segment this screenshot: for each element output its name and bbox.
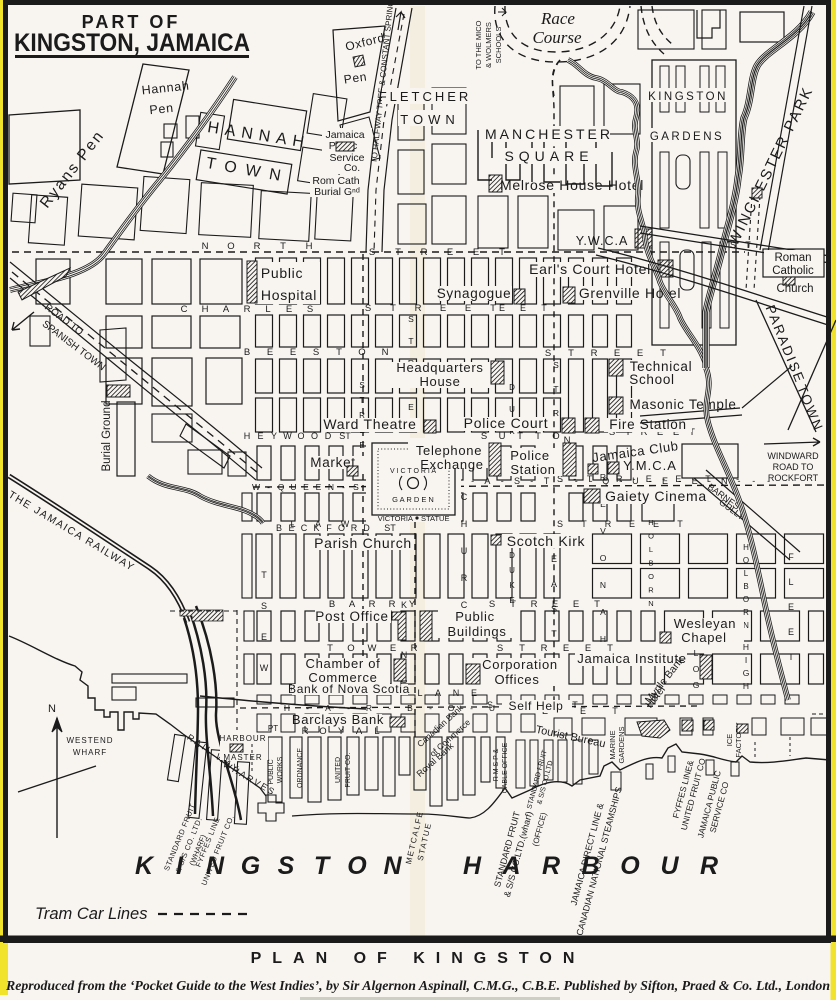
svg-text:SCHOOLS: SCHOOLS [494, 27, 503, 64]
svg-text:R M S P &: R M S P & [493, 748, 500, 781]
svg-text:E: E [257, 431, 263, 441]
svg-text:-: - [501, 476, 504, 486]
svg-text:WORKS: WORKS [277, 756, 284, 783]
svg-text:N: N [600, 580, 606, 590]
svg-text:HARBOUR: HARBOUR [219, 734, 266, 743]
svg-text:S: S [514, 476, 520, 486]
svg-text:TOWN: TOWN [400, 112, 459, 127]
svg-text:Gaiety Cinema: Gaiety Cinema [605, 488, 707, 504]
svg-text:O: O [620, 852, 640, 880]
svg-text:S: S [553, 360, 559, 370]
svg-text:A: A [551, 579, 557, 589]
svg-text:E: E [551, 554, 557, 564]
svg-text:E: E [267, 347, 273, 358]
svg-text:T: T [612, 706, 618, 716]
svg-text:Telephone: Telephone [416, 443, 482, 458]
svg-text:Synagogue: Synagogue [437, 286, 512, 301]
svg-text:U: U [509, 566, 515, 575]
svg-text:B: B [407, 703, 413, 713]
svg-text:FLETCHER: FLETCHER [379, 89, 472, 104]
svg-text:T: T [535, 431, 541, 442]
svg-text:-: - [342, 482, 345, 492]
svg-text:Q: Q [278, 482, 285, 492]
svg-text:W: W [252, 482, 260, 492]
svg-text:W: W [283, 431, 292, 441]
svg-text:H: H [463, 852, 482, 880]
svg-text:ORDNANCE: ORDNANCE [297, 748, 304, 788]
svg-text:T: T [490, 303, 496, 314]
svg-text:Ward Theatre: Ward Theatre [323, 416, 416, 432]
svg-text:Y.M.C.A: Y.M.C.A [623, 458, 677, 473]
svg-text:T: T [788, 652, 794, 662]
svg-text:O: O [743, 556, 749, 565]
svg-text:T: T [395, 247, 401, 258]
svg-text:E: E [563, 643, 569, 654]
svg-text:SQUARE: SQUARE [504, 148, 593, 164]
svg-text:Y.W.C.A: Y.W.C.A [576, 234, 629, 248]
svg-text:H: H [244, 431, 251, 441]
svg-text:T: T [327, 643, 333, 654]
svg-text:S: S [545, 348, 551, 359]
svg-text:E: E [788, 627, 794, 637]
svg-text:O: O [693, 664, 700, 674]
svg-text:C: C [181, 304, 188, 315]
svg-text:S: S [487, 700, 493, 710]
svg-text:A: A [356, 726, 363, 737]
svg-text:R: R [389, 599, 396, 610]
svg-text:O: O [600, 553, 607, 563]
svg-text:FRUIT CO.: FRUIT CO. [345, 753, 352, 788]
svg-text:W: W [368, 643, 377, 654]
svg-text:E: E [614, 348, 620, 359]
svg-text:R: R [421, 247, 428, 258]
svg-text:G A R D E N: G A R D E N [392, 495, 434, 504]
svg-text:E: E [447, 247, 453, 258]
svg-text:WESTEND: WESTEND [67, 736, 114, 745]
svg-text:R: R [600, 472, 606, 482]
svg-text:Bank of Nova Scotia: Bank of Nova Scotia [288, 682, 410, 696]
svg-text:Scotch Kirk: Scotch Kirk [507, 533, 586, 549]
svg-text:E: E [408, 402, 414, 412]
svg-text:E: E [390, 643, 396, 654]
svg-text:A: A [501, 852, 520, 880]
svg-text:O: O [297, 431, 304, 441]
svg-text:E: E [473, 247, 479, 258]
svg-text:S: S [408, 314, 414, 324]
svg-text:H: H [743, 543, 749, 552]
svg-text:H: H [648, 518, 653, 527]
svg-text:Public: Public [455, 609, 495, 624]
svg-text:R: R [553, 408, 559, 418]
svg-text:T: T [544, 476, 550, 486]
svg-text:D: D [509, 551, 515, 560]
svg-text:T: T [360, 396, 365, 405]
svg-text:Self Help: Self Help [509, 699, 564, 713]
svg-text:Church: Church [776, 283, 813, 295]
svg-text:& WOLMERS: & WOLMERS [484, 22, 493, 68]
svg-text:U: U [461, 546, 468, 556]
svg-text:T: T [581, 519, 587, 529]
svg-text:T: T [390, 303, 396, 314]
svg-text:F: F [788, 552, 794, 562]
svg-text:Tram Car Lines: Tram Car Lines [35, 905, 147, 923]
svg-text:-: - [470, 703, 473, 713]
svg-text:Earl's Court Hotel: Earl's Court Hotel [529, 261, 651, 277]
svg-text:-: - [633, 474, 636, 484]
svg-text:T: T [541, 303, 547, 313]
svg-text:R: R [616, 474, 623, 484]
svg-text:F: F [326, 523, 332, 533]
svg-text:H: H [202, 304, 209, 315]
svg-text:Police Court: Police Court [464, 415, 549, 431]
svg-text:O: O [648, 572, 654, 581]
svg-text:B: B [743, 582, 748, 591]
svg-text:Exchange: Exchange [420, 457, 483, 472]
svg-text:S: S [497, 643, 503, 654]
svg-text:Corporation: Corporation [482, 657, 558, 672]
svg-text:S: S [353, 482, 359, 492]
svg-text:H: H [306, 241, 313, 252]
svg-text:O: O [311, 431, 318, 441]
svg-text:T: T [587, 474, 593, 484]
svg-text:Y: Y [409, 599, 416, 610]
svg-text:Chapel: Chapel [681, 630, 726, 645]
svg-text:S: S [369, 247, 375, 258]
svg-text:O: O [319, 726, 326, 737]
svg-text:B: B [581, 852, 599, 880]
svg-text:L: L [744, 569, 749, 578]
svg-text:S: S [481, 431, 487, 442]
svg-text:I: I [176, 852, 184, 880]
svg-text:C: C [461, 492, 468, 502]
svg-text:E: E [653, 519, 659, 529]
svg-text:S: S [307, 304, 313, 315]
svg-text:ROAD TO: ROAD TO [773, 462, 814, 472]
svg-text:-: - [388, 703, 391, 713]
svg-text:V: V [600, 526, 606, 536]
svg-text:E: E [471, 688, 477, 698]
svg-text:U: U [660, 852, 679, 880]
svg-text:UNITED: UNITED [335, 757, 342, 783]
svg-text:A: A [315, 519, 321, 529]
svg-text:KINGSTON: KINGSTON [648, 91, 728, 103]
svg-text:U: U [290, 482, 296, 492]
svg-text:R: R [244, 304, 251, 315]
svg-text:MASTER: MASTER [223, 753, 262, 762]
svg-text:E: E [509, 596, 514, 605]
svg-text:VICTORIA: VICTORIA [378, 514, 413, 523]
svg-text:ST: ST [339, 431, 351, 441]
svg-text:C: C [301, 523, 308, 533]
svg-text:S: S [557, 519, 563, 529]
svg-text:WINDWARD: WINDWARD [767, 451, 819, 461]
svg-text:Co.: Co. [344, 162, 360, 174]
svg-text:R: R [531, 599, 538, 610]
svg-text:G: G [743, 668, 750, 678]
svg-text:O: O [347, 852, 367, 880]
svg-text:Headquarters: Headquarters [396, 360, 483, 375]
svg-text:L: L [374, 726, 379, 737]
svg-text:R: R [415, 303, 422, 314]
svg-text:O: O [648, 532, 654, 541]
svg-text:B: B [244, 347, 250, 358]
svg-text:-: - [429, 703, 432, 713]
svg-text:L: L [788, 577, 793, 587]
svg-text:O: O [347, 643, 354, 654]
svg-text:N: N [206, 852, 225, 880]
svg-text:H: H [743, 681, 749, 691]
svg-text:R: R [254, 241, 261, 252]
svg-text:ROCKFORT: ROCKFORT [768, 473, 819, 483]
svg-text:-: - [267, 482, 270, 492]
svg-text:N: N [48, 703, 56, 715]
svg-text:T: T [499, 247, 505, 258]
svg-text:R: R [542, 852, 560, 880]
svg-text:-: - [752, 476, 755, 486]
svg-text:U: U [499, 431, 506, 442]
svg-text:R: R [541, 643, 548, 654]
svg-text:N: N [383, 852, 402, 880]
svg-text:E: E [290, 347, 296, 358]
svg-text:G: G [241, 852, 260, 880]
svg-text:-: - [721, 474, 724, 484]
svg-text:A: A [600, 607, 606, 617]
svg-text:W: W [260, 663, 269, 673]
svg-text:Post Office: Post Office [315, 609, 388, 624]
svg-text:Burial Ground: Burial Ground [101, 401, 113, 472]
svg-text:R: R [302, 726, 309, 737]
svg-text:R: R [648, 586, 654, 595]
svg-text:I: I [745, 655, 747, 665]
svg-text:R: R [411, 643, 418, 654]
svg-text:R: R [700, 852, 718, 880]
svg-text:N: N [648, 599, 653, 608]
svg-text:T: T [280, 241, 286, 252]
svg-text:S: S [261, 601, 267, 611]
svg-text:T: T [336, 347, 342, 358]
svg-text:Race: Race [540, 9, 575, 28]
svg-text:A: A [435, 688, 441, 698]
svg-text:T: T [408, 336, 413, 346]
svg-text:T: T [745, 240, 751, 250]
svg-text:Station: Station [510, 462, 555, 477]
svg-text:H: H [600, 634, 606, 644]
svg-text:E: E [573, 599, 579, 610]
svg-text:D: D [509, 383, 515, 392]
svg-text:House: House [419, 374, 460, 389]
svg-text:T: T [677, 519, 683, 529]
svg-text:Melrose House Hotel: Melrose House Hotel [500, 177, 644, 193]
svg-text:T: T [551, 629, 557, 639]
svg-text:Offices: Offices [494, 672, 539, 687]
svg-text:Public: Public [261, 265, 303, 281]
svg-text:PLAN OF KINGSTON: PLAN OF KINGSTON [251, 950, 586, 967]
svg-text:N: N [743, 621, 749, 630]
svg-text:N: N [382, 347, 389, 358]
svg-text:E: E [261, 632, 267, 642]
svg-text:-: - [662, 474, 665, 484]
svg-text:Barclays Bank: Barclays Bank [292, 712, 384, 727]
svg-text:Burial Gⁿᵈ: Burial Gⁿᵈ [314, 186, 360, 198]
svg-text:E: E [788, 602, 794, 612]
svg-text:N: N [328, 482, 334, 492]
svg-text:B: B [276, 523, 282, 533]
svg-text:O: O [227, 241, 234, 252]
svg-text:ICE: ICE [725, 734, 734, 747]
svg-text:E: E [316, 482, 322, 492]
svg-text:E: E [637, 348, 643, 359]
svg-text:STATUE: STATUE [421, 514, 449, 523]
svg-text:R: R [461, 573, 468, 583]
svg-text:L: L [290, 519, 295, 529]
svg-text:B: B [648, 559, 653, 568]
svg-text:S: S [278, 852, 295, 880]
svg-text:MANCHESTER: MANCHESTER [485, 126, 613, 142]
svg-text:Buildings: Buildings [447, 624, 506, 639]
svg-text:S: S [359, 381, 364, 390]
svg-text:E: E [465, 303, 471, 314]
svg-text:-: - [736, 474, 739, 484]
svg-text:E: E [675, 474, 681, 484]
svg-text:Catholic: Catholic [772, 265, 814, 277]
svg-text:Pen: Pen [149, 101, 175, 117]
svg-text:S: S [551, 604, 557, 614]
svg-text:O: O [358, 347, 365, 358]
svg-text:T: T [261, 570, 267, 580]
svg-text:T: T [517, 431, 523, 442]
svg-text:Hospital: Hospital [261, 287, 317, 303]
svg-text:PT: PT [268, 724, 278, 733]
svg-text:E: E [499, 303, 505, 313]
svg-text:Wesleyan: Wesleyan [674, 616, 736, 631]
svg-text:A: A [223, 304, 230, 315]
svg-text:O: O [552, 431, 559, 442]
svg-text:School: School [629, 372, 674, 387]
svg-text:TO THE MICO: TO THE MICO [474, 20, 483, 69]
svg-text:A: A [484, 476, 490, 486]
svg-text:S: S [365, 303, 371, 314]
svg-text:Y: Y [271, 431, 277, 441]
svg-text:E: E [629, 519, 635, 529]
svg-text:T: T [519, 643, 525, 654]
svg-text:H: H [461, 519, 468, 529]
svg-text:T: T [568, 348, 574, 359]
svg-text:GARDENS: GARDENS [650, 131, 724, 143]
svg-text:L: L [265, 304, 270, 315]
svg-text:Police: Police [510, 448, 550, 463]
svg-text:PUBLIC: PUBLIC [268, 759, 275, 784]
svg-text:E: E [303, 482, 309, 492]
svg-text:ST: ST [384, 523, 396, 533]
svg-text:R: R [351, 523, 358, 533]
svg-text:E: E [440, 303, 446, 314]
svg-text:CABLE OFFICE: CABLE OFFICE [502, 742, 509, 793]
svg-text:L: L [417, 688, 422, 698]
svg-text:MARINE: MARINE [608, 730, 617, 759]
svg-text:N: N [453, 688, 460, 698]
svg-text:O: O [743, 595, 749, 604]
svg-text:T: T [660, 348, 666, 359]
svg-text:R: R [591, 348, 598, 359]
svg-text:GARDENS: GARDENS [617, 726, 626, 763]
svg-text:U: U [509, 405, 515, 414]
svg-text:-: - [471, 476, 474, 486]
svg-text:T: T [553, 384, 558, 394]
svg-text:E: E [580, 706, 586, 716]
svg-text:-: - [530, 476, 533, 486]
svg-text:Chamber of: Chamber of [306, 656, 381, 671]
svg-text:WHARF: WHARF [73, 748, 107, 757]
svg-text:G: G [693, 680, 700, 690]
svg-text:T: T [572, 700, 578, 710]
svg-text:Reproduced from the ‘Pocket Gu: Reproduced from the ‘Pocket Guide to the… [5, 978, 830, 993]
svg-text:R: R [743, 608, 749, 617]
svg-text:W: W [341, 519, 350, 529]
svg-text:K: K [509, 581, 515, 590]
svg-text:S: S [313, 347, 319, 358]
svg-text:D: D [325, 431, 332, 441]
svg-text:D: D [363, 523, 370, 533]
svg-text:KINGSTON, JAMAICA: KINGSTON, JAMAICA [14, 29, 250, 57]
svg-text:L: L [649, 545, 653, 554]
svg-text:L: L [694, 648, 699, 658]
svg-text:E: E [646, 474, 652, 484]
svg-text:Course: Course [532, 28, 582, 47]
svg-text:Y: Y [338, 726, 345, 737]
svg-text:K: K [135, 852, 155, 880]
svg-text:Parish Church: Parish Church [314, 535, 412, 551]
svg-text:Roman: Roman [774, 252, 811, 264]
svg-text:K: K [401, 600, 407, 610]
svg-text:E: E [359, 441, 364, 450]
svg-text:N: N [202, 241, 209, 252]
svg-text:E: E [286, 304, 292, 315]
svg-text:Fire Station: Fire Station [609, 417, 686, 432]
